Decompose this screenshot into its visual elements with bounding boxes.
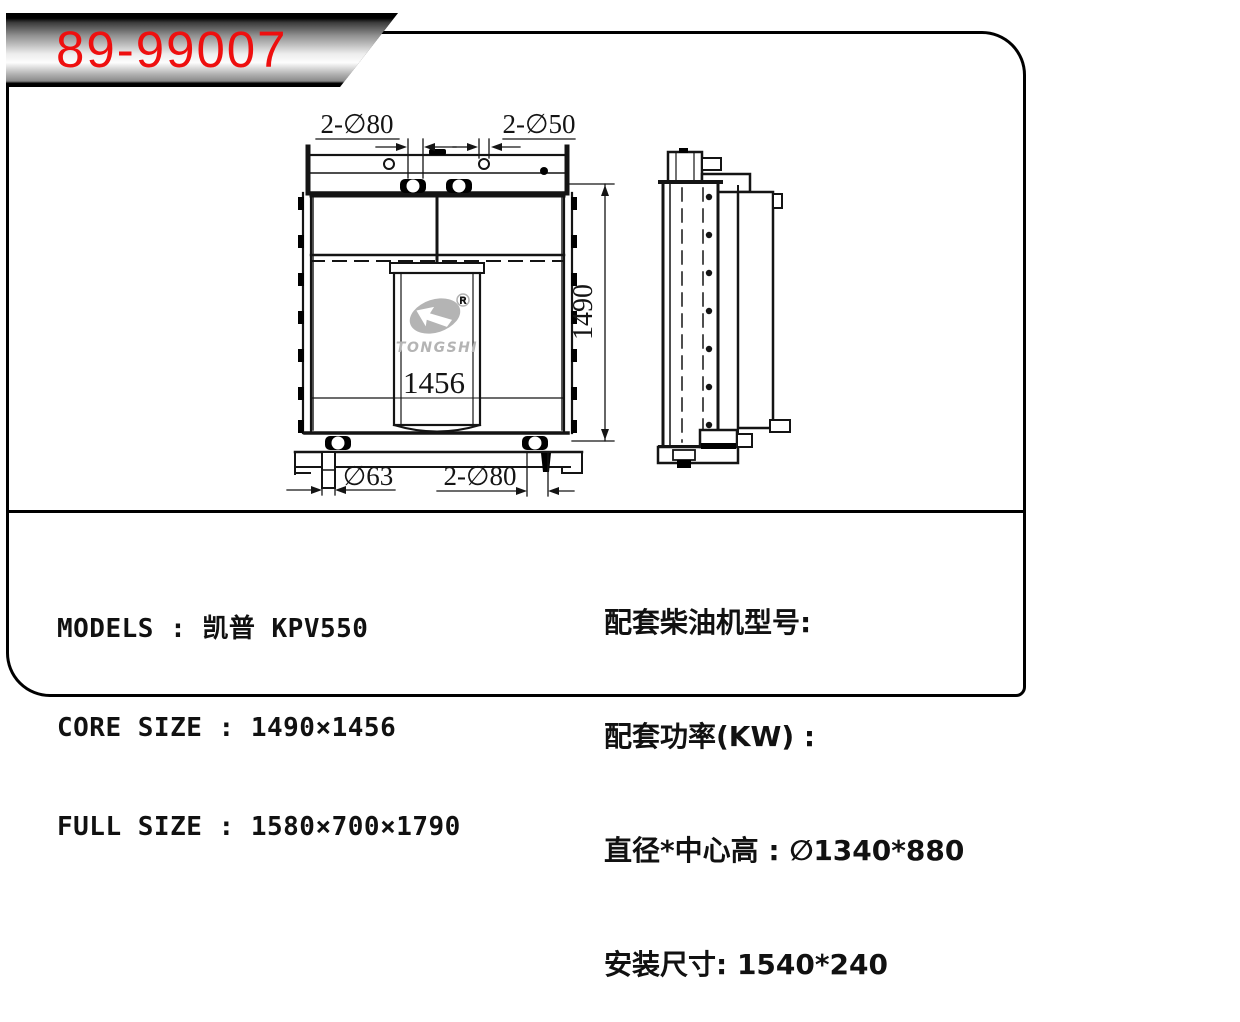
bottom-port-right [522,436,548,450]
registered-mark: R [460,296,467,306]
spec-diameter-height: 直径*中心高 : ∅1340*880 [604,832,964,870]
spec-full-size: FULL SIZE : 1580×700×1790 [57,811,461,844]
dim-bottom: 2-∅80 [443,461,516,491]
dim-height: 1490 [568,284,599,340]
brand-name: TONGSHI [396,340,478,356]
spec-engine-model: 配套柴油机型号: [604,604,964,642]
dim-drain: ∅63 [343,461,394,491]
spec-core-size: CORE SIZE : 1490×1456 [57,712,461,745]
filler-neck-left [400,179,426,193]
spec-mount-size: 安装尺寸: 1540*240 [604,946,964,984]
spec-models: MODELS : 凯普 KPV550 [57,613,461,646]
part-number-banner: 89-99007 [6,13,398,87]
front-top-tank [308,147,567,193]
side-view [658,148,790,468]
front-bottom-tank [295,433,582,488]
dim-core-width: 1456 [403,365,465,400]
front-view: R TONGSHI 1456 [287,109,614,496]
part-number: 89-99007 [56,13,288,87]
filler-neck-right [446,179,472,193]
bottom-port-left [325,436,351,450]
spec-block-left: MODELS : 凯普 KPV550 CORE SIZE : 1490×1456… [57,547,461,877]
spec-block-right: 配套柴油机型号: 配套功率(KW) : 直径*中心高 : ∅1340*880 安… [604,528,964,1022]
spec-power: 配套功率(KW) : [604,718,964,756]
dim-top-right: 2-∅50 [502,109,575,139]
dim-top-left: 2-∅80 [320,109,393,139]
